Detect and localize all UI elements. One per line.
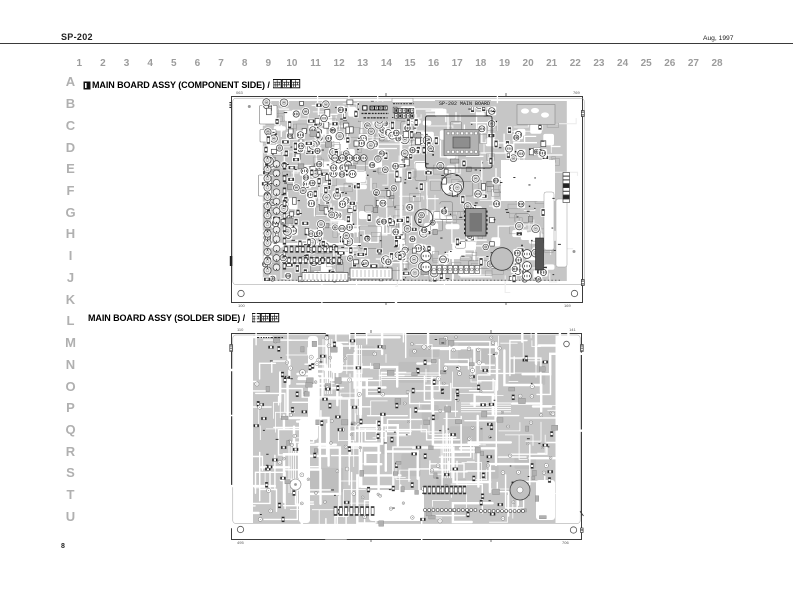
svg-text:SP-202 MAIN BOARD: SP-202 MAIN BOARD [439,101,490,107]
